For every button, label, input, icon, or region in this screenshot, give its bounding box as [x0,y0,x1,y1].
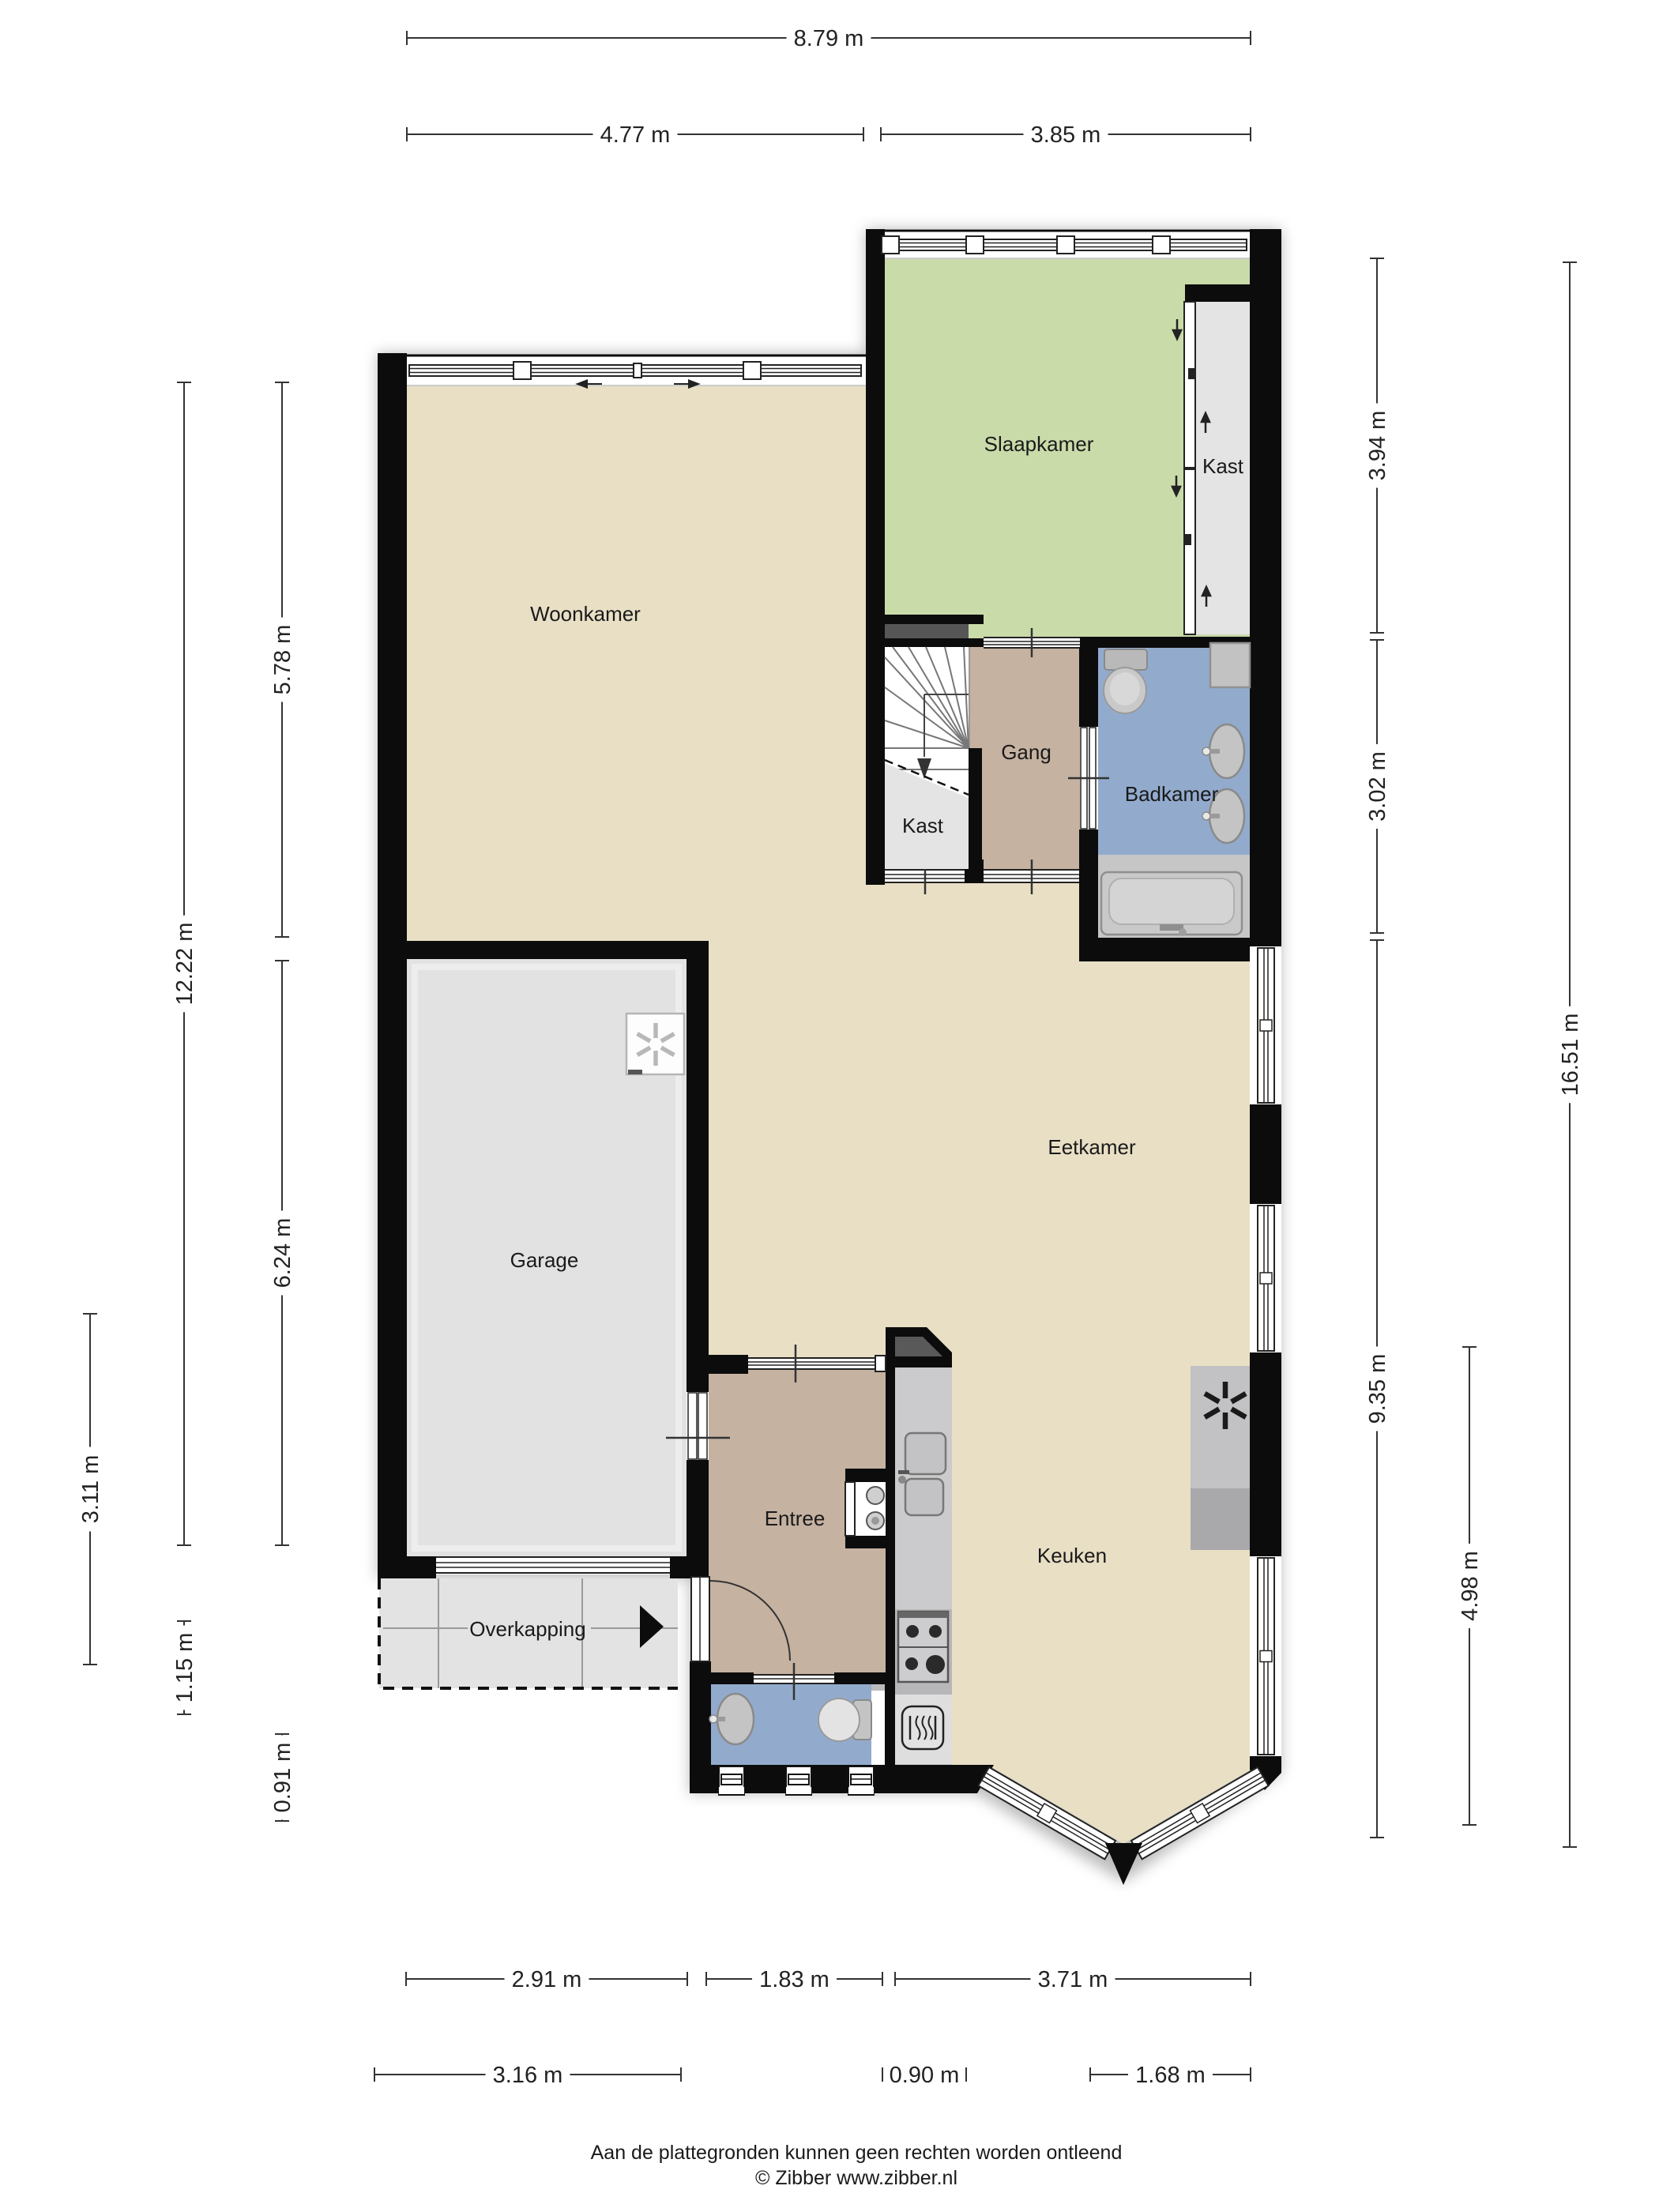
svg-text:Aan de plattegronden kunnen ge: Aan de plattegronden kunnen geen rechten… [591,2142,1123,2164]
svg-text:12.22 m: 12.22 m [172,923,197,1006]
svg-text:Woonkamer: Woonkamer [530,602,641,626]
svg-text:1.15 m: 1.15 m [172,1633,197,1703]
svg-text:6.24 m: 6.24 m [270,1218,295,1288]
svg-text:1.83 m: 1.83 m [759,1967,829,1992]
svg-text:3.02 m: 3.02 m [1365,751,1390,822]
svg-text:Garage: Garage [510,1248,579,1272]
svg-text:Badkamer: Badkamer [1125,782,1219,806]
svg-text:Eetkamer: Eetkamer [1048,1135,1136,1159]
svg-text:3.11 m: 3.11 m [78,1455,103,1524]
svg-text:Entree: Entree [765,1507,826,1530]
svg-text:3.94 m: 3.94 m [1365,411,1390,481]
svg-text:Keuken: Keuken [1037,1544,1107,1567]
svg-text:2.91 m: 2.91 m [512,1967,582,1992]
svg-text:3.85 m: 3.85 m [1031,122,1101,148]
svg-text:© Zibber www.zibber.nl: © Zibber www.zibber.nl [755,2167,957,2189]
svg-text:4.77 m: 4.77 m [600,122,671,148]
svg-text:1.68 m: 1.68 m [1135,2063,1206,2088]
svg-text:16.51 m: 16.51 m [1558,1014,1583,1097]
svg-text:3.71 m: 3.71 m [1038,1967,1108,1992]
svg-text:Slaapkamer: Slaapkamer [984,432,1094,456]
svg-text:8.79 m: 8.79 m [794,26,864,51]
svg-text:4.98 m: 4.98 m [1458,1551,1483,1621]
svg-text:0.91 m: 0.91 m [270,1743,295,1813]
svg-text:0.90 m: 0.90 m [890,2063,960,2088]
svg-text:Overkapping: Overkapping [469,1617,585,1641]
svg-text:Kast: Kast [1202,454,1244,478]
svg-text:Gang: Gang [1001,740,1051,764]
svg-text:Kast: Kast [902,814,944,837]
svg-text:3.16 m: 3.16 m [493,2063,563,2088]
svg-text:5.78 m: 5.78 m [270,625,295,695]
svg-text:9.35 m: 9.35 m [1365,1354,1390,1424]
